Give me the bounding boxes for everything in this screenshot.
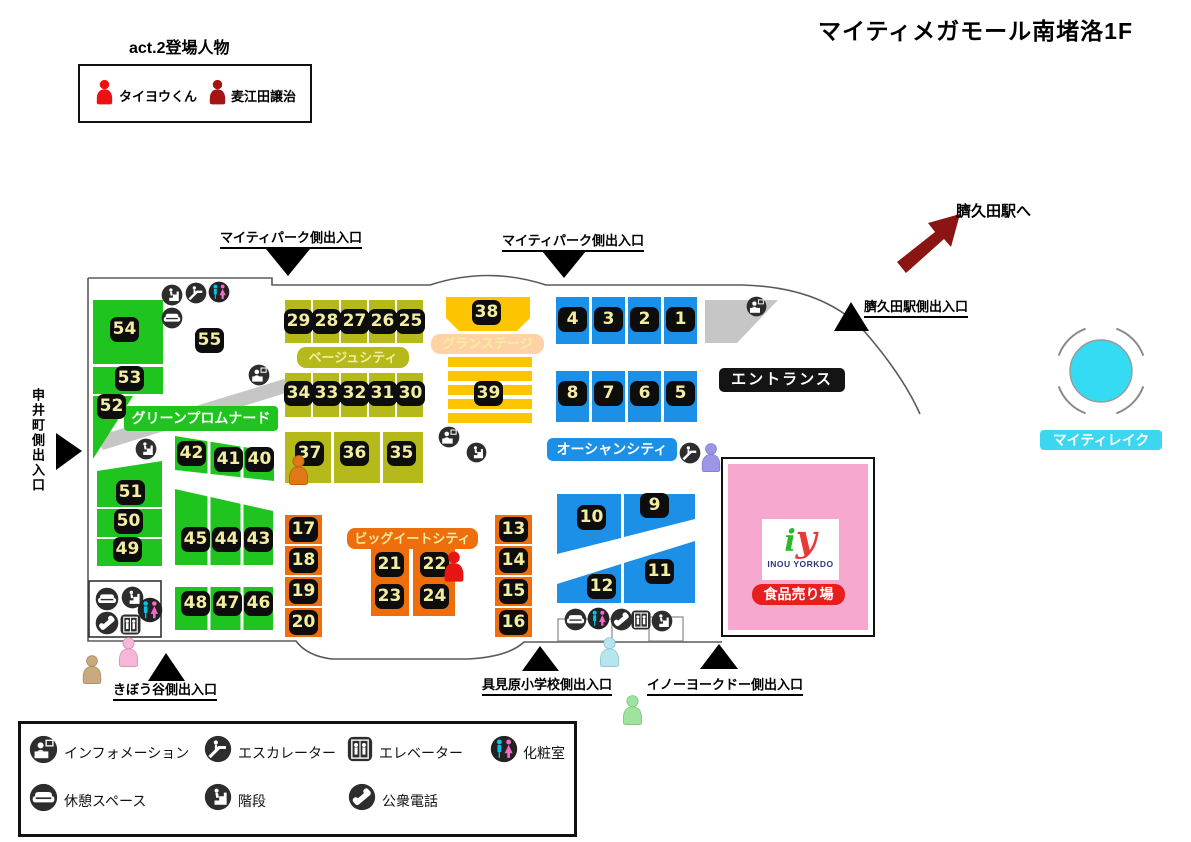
unit-badge-17: 17 — [289, 517, 318, 542]
cast-marker-taiyou-icon — [94, 79, 115, 105]
unit-badge-5: 5 — [666, 381, 695, 406]
exit-label-park-west: マイティパーク側出入口 — [220, 227, 362, 249]
unit-badge-21: 21 — [375, 552, 404, 577]
stairs-icon — [161, 284, 183, 306]
food-hall-label: 食品売り場 — [752, 584, 845, 605]
unit-badge-8: 8 — [558, 381, 587, 406]
mighty-lake — [1059, 329, 1144, 414]
restroom-icon — [208, 281, 230, 303]
unit-badge-20: 20 — [289, 610, 318, 635]
person-marker-pink — [116, 637, 141, 667]
unit-badge-3: 3 — [594, 307, 623, 332]
station-direction-label: 臍久田駅へ — [956, 200, 1031, 221]
unit-badge-42: 42 — [177, 441, 206, 466]
unit-badge-11: 11 — [645, 559, 674, 584]
unit-badge-43: 43 — [244, 527, 273, 552]
area-label-beige-city: ベージュシティ — [297, 347, 409, 368]
legend-label-information: インフォメーション — [64, 743, 189, 763]
area-label-green-promenade: グリーンプロムナード — [124, 406, 278, 431]
unit-badge-55: 55 — [195, 328, 224, 353]
area-label-entrance: エントランス — [719, 368, 845, 392]
unit-badge-4: 4 — [558, 307, 587, 332]
unit-badge-24: 24 — [420, 584, 449, 609]
cast-heading: act.2登場人物 — [129, 34, 229, 58]
person-marker-orange — [286, 455, 311, 485]
unit-badge-47: 47 — [213, 591, 242, 616]
unit-badge-51: 51 — [116, 480, 145, 505]
inou-yorkdo-logo: iy INOU YORKDO — [762, 519, 839, 580]
area-label-mighty-lake: マイティレイク — [1040, 430, 1162, 450]
rest-space-icon — [29, 783, 58, 812]
unit-badge-34: 34 — [284, 381, 313, 406]
cast-marker-mugieda-icon — [207, 79, 228, 105]
legend-label-escalator: エスカレーター — [238, 743, 336, 763]
exit-label-saruimachi: 申井町側出入口 — [28, 388, 47, 513]
public-phone-icon — [95, 611, 119, 635]
unit-badge-52: 52 — [97, 394, 126, 419]
unit-badge-48: 48 — [181, 591, 210, 616]
unit-badge-46: 46 — [244, 591, 273, 616]
unit-badge-19: 19 — [289, 579, 318, 604]
person-marker-lavender — [699, 443, 723, 472]
unit-badge-16: 16 — [499, 610, 528, 635]
escalator-icon — [204, 735, 232, 763]
legend-label-elevator: エレベーター — [379, 743, 463, 763]
unit-badge-14: 14 — [499, 548, 528, 573]
person-marker-tan — [80, 655, 104, 684]
station-direction-arrow — [897, 214, 960, 273]
unit-badge-28: 28 — [312, 309, 341, 334]
rest-space-icon — [161, 307, 183, 329]
restroom-icon — [490, 735, 518, 763]
escalator-icon — [679, 442, 701, 464]
information-icon — [746, 296, 767, 317]
unit-badge-53: 53 — [115, 366, 144, 391]
information-icon — [248, 364, 270, 386]
exit-label-gumihara: 具見原小学校側出入口 — [482, 674, 612, 696]
legend-label-public-phone: 公衆電話 — [382, 791, 438, 811]
unit-badge-44: 44 — [212, 527, 241, 552]
rest-space-icon — [564, 608, 587, 631]
escalator-icon — [185, 282, 207, 304]
taiyou-marker — [441, 551, 467, 582]
exit-triangle-park-east — [542, 251, 586, 278]
unit-badge-40: 40 — [245, 447, 274, 472]
elevator-icon — [346, 735, 374, 763]
legend-label-stairs: 階段 — [238, 791, 266, 811]
information-icon — [29, 735, 58, 764]
unit-badge-23: 23 — [375, 584, 404, 609]
unit-badge-35: 35 — [387, 441, 416, 466]
unit-badge-41: 41 — [214, 447, 243, 472]
unit-badge-39: 39 — [474, 381, 503, 406]
stairs-icon — [135, 438, 157, 460]
unit-badge-49: 49 — [113, 537, 142, 562]
exit-label-inou: イノーヨークドー側出入口 — [647, 674, 803, 696]
stairs-icon — [204, 783, 232, 811]
unit-badge-30: 30 — [396, 381, 425, 406]
unit-badge-10: 10 — [577, 505, 606, 530]
logo-letter-i: i — [784, 524, 795, 559]
exit-label-kiboudani: きぼう谷側出入口 — [113, 679, 217, 701]
stage-stripe — [448, 357, 532, 367]
exit-triangle-gumihara — [522, 646, 559, 671]
unit-badge-7: 7 — [594, 381, 623, 406]
unit-badge-54: 54 — [110, 317, 139, 342]
unit-badge-9: 9 — [640, 493, 669, 518]
unit-badge-33: 33 — [312, 381, 341, 406]
stage-stripe — [448, 371, 532, 381]
unit-badge-50: 50 — [114, 509, 143, 534]
restroom-icon — [587, 607, 610, 630]
exit-label-station: 臍久田駅側出入口 — [864, 296, 968, 318]
unit-badge-26: 26 — [368, 309, 397, 334]
cast-name-mugieda: 麦江田譲治 — [231, 86, 296, 105]
logo-letter-y: y — [796, 518, 817, 560]
store-name: INOU YORKDO — [762, 559, 839, 569]
legend-label-rest-space: 休憩スペース — [64, 791, 146, 811]
unit-badge-18: 18 — [289, 548, 318, 573]
unit-badge-31: 31 — [368, 381, 397, 406]
stairs-icon — [466, 442, 487, 463]
elevator-icon — [119, 613, 142, 636]
unit-badge-25: 25 — [396, 309, 425, 334]
unit-badge-32: 32 — [340, 381, 369, 406]
page-title: マイティメガモール南堵洛1F — [818, 12, 1133, 46]
legend-label-restroom: 化粧室 — [523, 743, 565, 763]
public-phone-icon — [348, 783, 376, 811]
mall-floor-map: グリーンプロムナード ベージュシティ グランステージ オーシャンシティ エントラ… — [0, 0, 1191, 842]
area-label-ocean-city: オーシャンシティ — [547, 438, 677, 461]
unit-badge-6: 6 — [630, 381, 659, 406]
stage-stripe — [448, 413, 532, 423]
unit-badge-1: 1 — [666, 307, 695, 332]
unit-badge-2: 2 — [630, 307, 659, 332]
area-label-grand-stage: グランステージ — [431, 334, 544, 354]
person-marker-light-blue — [597, 637, 622, 667]
stairs-icon — [651, 610, 673, 632]
unit-badge-27: 27 — [340, 309, 369, 334]
unit-badge-45: 45 — [181, 527, 210, 552]
exit-triangle-kiboudani — [148, 653, 185, 681]
exit-triangle-inou — [700, 644, 738, 669]
rest-space-icon — [95, 587, 119, 611]
person-marker-light-green — [620, 695, 645, 725]
elevator-icon — [630, 609, 652, 631]
area-label-big-eat-city: ビッグイートシティ — [347, 528, 478, 549]
unit-badge-29: 29 — [284, 309, 313, 334]
unit-badge-12: 12 — [587, 574, 616, 599]
information-icon — [438, 426, 460, 448]
exit-triangle-saruimachi — [56, 433, 82, 470]
cast-name-taiyou: タイヨウくん — [119, 86, 197, 105]
exit-label-park-east: マイティパーク側出入口 — [502, 230, 644, 252]
unit-badge-13: 13 — [499, 517, 528, 542]
unit-badge-36: 36 — [340, 441, 369, 466]
unit-badge-15: 15 — [499, 579, 528, 604]
exit-triangle-park-west — [266, 249, 310, 276]
unit-badge-38: 38 — [472, 300, 501, 325]
